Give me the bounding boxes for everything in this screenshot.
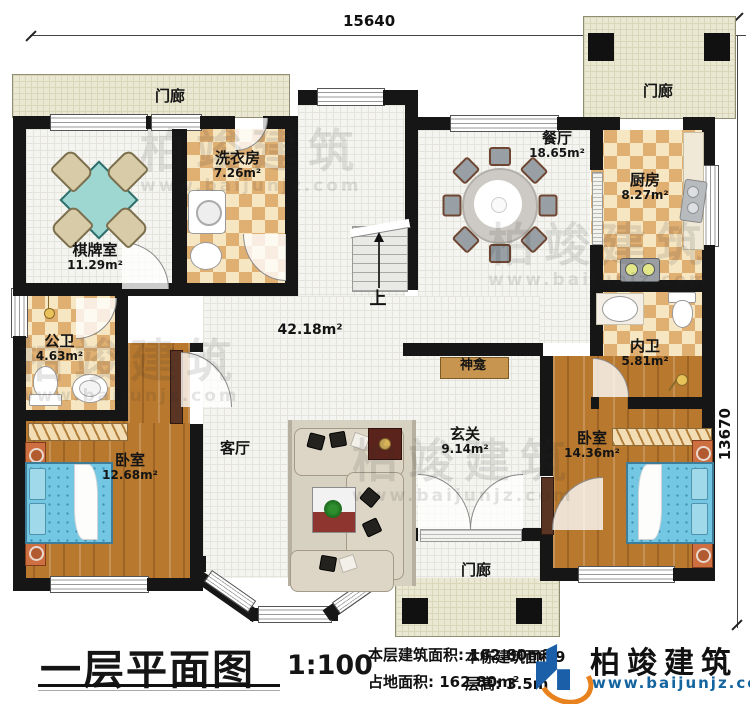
window <box>702 165 719 247</box>
wall-segment <box>13 578 50 591</box>
legend-scale: 1:100 <box>287 650 373 681</box>
stair-up-arrow <box>378 240 380 288</box>
logo: 柏竣建筑 www.baijunjz.com <box>536 630 750 700</box>
window <box>578 566 675 583</box>
shower-head-disc <box>676 374 688 386</box>
pillow <box>691 468 708 500</box>
chair <box>489 244 511 263</box>
wall-segment <box>172 129 187 283</box>
wall-segment <box>628 397 715 409</box>
pillow <box>29 468 46 500</box>
toilet-tank <box>29 394 62 406</box>
laundry-sink <box>190 242 222 270</box>
shrine-label: 神龛 <box>448 359 498 374</box>
living-area-label: 42.18m² <box>250 322 370 338</box>
sofa-cushion <box>329 431 347 449</box>
room-label-bath-ensuite: 内卫 5.81m² <box>600 338 690 369</box>
logo-url[interactable]: www.baijunjz.com <box>592 674 750 692</box>
dimension-tick <box>25 30 36 41</box>
room-label-laundry: 洗衣房 7.26m² <box>195 150 280 181</box>
wall-segment <box>418 117 450 130</box>
stairs-up-label: 上 <box>358 290 398 310</box>
room-label-living: 客厅 <box>200 440 270 457</box>
porch-right <box>583 16 736 119</box>
wall-segment <box>591 397 599 409</box>
room-label-bedroom-right: 卧室 14.36m² <box>548 430 636 461</box>
washbasin <box>602 296 638 322</box>
washbasin-bowl <box>79 380 101 397</box>
legend-title-underline2 <box>38 690 280 691</box>
nightstand <box>692 542 713 568</box>
bay-window-center <box>258 606 332 623</box>
porch-left-label: 门廊 <box>140 88 200 105</box>
wall-segment <box>115 296 128 414</box>
window <box>317 88 385 106</box>
room-label-bath-public: 公卫 4.63m² <box>22 333 97 364</box>
washing-machine-door <box>196 200 222 226</box>
porch-bottom-label: 门廊 <box>446 562 506 579</box>
right-dimension-line <box>737 35 738 628</box>
column <box>516 598 542 624</box>
top-dimension-label: 15640 <box>343 12 395 30</box>
legend-title-underline <box>38 684 280 687</box>
tv-cabinet-lamp <box>379 438 391 450</box>
pillow <box>29 503 46 535</box>
wardrobe <box>28 423 128 441</box>
wall-segment <box>603 117 620 130</box>
legend-title: 一层平面图 <box>40 636 255 696</box>
plant <box>324 500 342 518</box>
room-label-chess: 棋牌室 11.29m² <box>40 242 150 273</box>
column <box>588 33 614 61</box>
wall-segment <box>553 568 578 581</box>
room-label-bedroom-left: 卧室 12.68m² <box>90 452 170 483</box>
sofa-cushion <box>319 555 337 573</box>
toilet <box>672 300 693 328</box>
chair <box>443 195 462 217</box>
chair <box>539 195 558 217</box>
column <box>704 33 730 61</box>
window <box>50 114 148 131</box>
room-label-dining: 餐厅 18.65m² <box>507 130 607 161</box>
right-dimension-label: 13670 <box>716 408 734 460</box>
wall-segment <box>403 343 543 356</box>
wall-segment <box>13 116 26 288</box>
pendant-lamp-bulb <box>44 308 55 319</box>
column <box>402 598 428 624</box>
stair-up-arrowhead <box>374 232 384 242</box>
wall-segment <box>298 90 317 105</box>
stove-burner <box>642 263 655 276</box>
wall-segment <box>13 410 128 421</box>
bed-sheet-fold <box>638 464 662 540</box>
dining-table-center <box>491 197 507 213</box>
wall-segment <box>285 116 298 296</box>
kitchen-sink-basin <box>687 202 699 214</box>
entry-threshold <box>420 529 522 542</box>
porch-right-label: 门廊 <box>628 83 688 100</box>
wall-segment <box>673 568 715 581</box>
stove-burner <box>625 263 638 276</box>
room-label-kitchen: 厨房 8.27m² <box>600 172 690 203</box>
window <box>50 576 149 593</box>
wall-segment <box>200 116 235 129</box>
pillow <box>691 503 708 535</box>
floor-plan-page: 15640 13670 门廊 门廊 门廊 柏竣建筑 www.baijunjz.c… <box>0 0 750 704</box>
wall-segment <box>190 343 203 352</box>
room-label-entry: 玄关 9.14m² <box>430 426 500 457</box>
